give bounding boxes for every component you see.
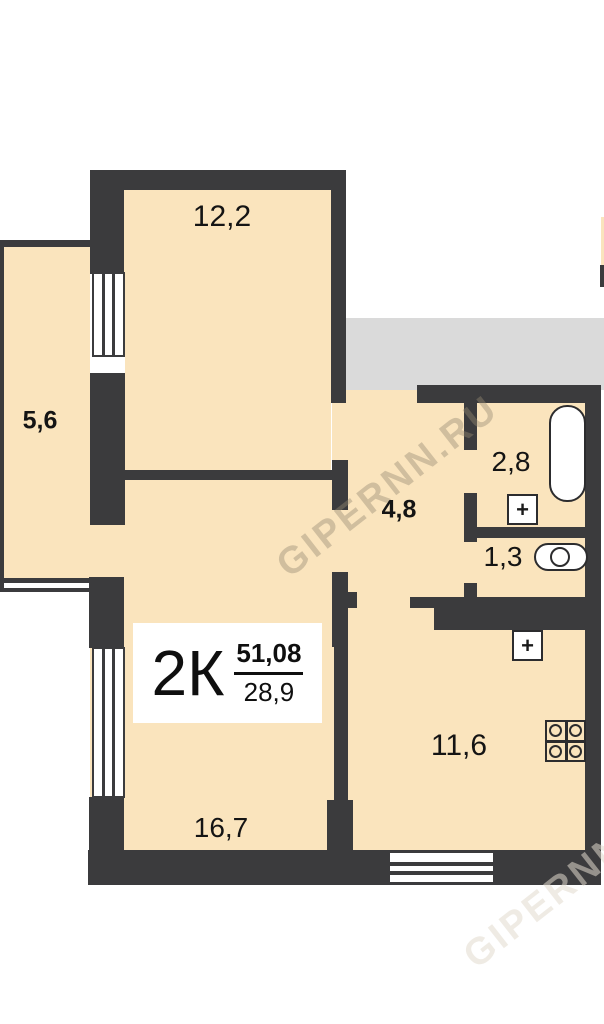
- window-mullion: [102, 274, 105, 355]
- wall-spine-thin: [334, 647, 348, 800]
- wall-left-lower: [89, 577, 124, 648]
- living-area-value: 28,9: [244, 675, 295, 708]
- window-mullion: [112, 274, 115, 355]
- wall-bedroom-right: [331, 170, 346, 403]
- balcony-rail-bottom-1: [0, 578, 93, 583]
- area-fraction: 51,08 28,9: [234, 638, 303, 708]
- window-mullion: [102, 649, 105, 796]
- wall-kitchen-top: [434, 597, 587, 630]
- stove-burner-icon: [549, 745, 562, 758]
- balcony-rail-top: [0, 240, 93, 247]
- balcony-window: [92, 272, 125, 357]
- wall-spine-upper: [332, 572, 348, 647]
- window-mullion: [112, 649, 115, 796]
- toilet-bowl-icon: [550, 547, 570, 567]
- wall-left-mid: [90, 373, 125, 525]
- stove-burner-icon: [569, 724, 582, 737]
- wall-bottom: [88, 850, 601, 885]
- wall-right-outer: [585, 385, 601, 885]
- apartment-info-box: 2К 51,08 28,9: [133, 623, 322, 723]
- wall-bathroom-top: [417, 385, 601, 403]
- stove-burner-icon: [569, 745, 582, 758]
- wall-spine-tab: [348, 592, 357, 608]
- kitchen-window: [390, 853, 493, 882]
- wall-wc-divider: [473, 527, 585, 538]
- balcony-rail-bottom-2: [0, 588, 93, 592]
- wc-area-label: 1,3: [484, 541, 523, 573]
- wall-bedroom-bottom: [123, 470, 347, 480]
- bedroom-area-label: 12,2: [193, 200, 251, 234]
- apartment-type-label: 2К: [152, 641, 225, 705]
- kitchen-area-label: 11,6: [431, 729, 487, 763]
- living-room-area-label: 16,7: [194, 812, 249, 844]
- washbasin-icon: +: [507, 494, 538, 525]
- kitchen-sink-icon: +: [512, 630, 543, 661]
- bathtub-icon: [549, 405, 586, 502]
- floor-plan: + + 12,2 5,6 4,8 2,8 1,3 11,6 16,7 2К 51…: [0, 0, 604, 1024]
- window-mullion: [390, 862, 493, 866]
- total-area-value: 51,08: [234, 638, 303, 675]
- living-room-window: [92, 647, 125, 798]
- wall-spine-lower: [327, 800, 353, 852]
- wall-left-upper: [90, 190, 124, 274]
- toilet-icon: [534, 543, 588, 571]
- balcony-door-opening: [92, 357, 125, 373]
- balcony-area-label: 5,6: [23, 407, 58, 436]
- bathroom-area-label: 2,8: [492, 446, 531, 478]
- window-mullion: [390, 871, 493, 875]
- wall-left-bottom: [89, 797, 124, 852]
- stove-grid-line: [547, 740, 584, 743]
- stove-burner-icon: [549, 724, 562, 737]
- balcony-rail-left: [0, 240, 4, 592]
- common-corridor-area: [345, 318, 604, 390]
- wall-top: [90, 170, 346, 190]
- edge-wall-sliver: [600, 265, 604, 287]
- wall-kitchen-arm: [410, 597, 434, 608]
- stove-icon: [545, 720, 586, 762]
